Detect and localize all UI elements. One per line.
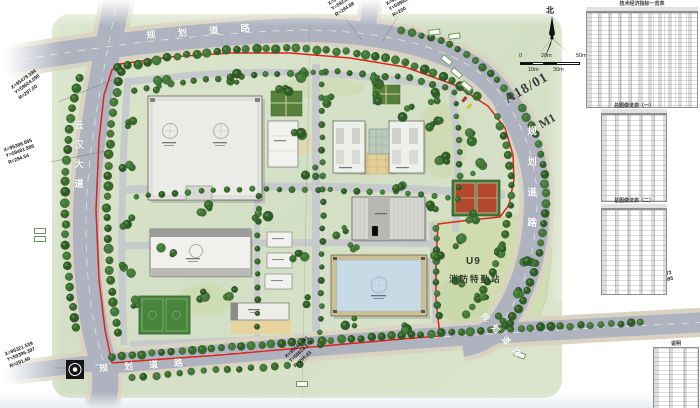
atrium	[369, 129, 389, 154]
road-sign-chip	[34, 228, 46, 234]
schedule-table-1: 总图做法表（一）	[601, 103, 667, 202]
scale-segment	[520, 62, 532, 65]
building-c	[150, 229, 253, 278]
notes-table: 说明	[653, 341, 699, 408]
fire-station-name: 消防特勤站	[449, 273, 502, 285]
building-e	[331, 255, 430, 319]
scale-10m: 10m	[528, 67, 539, 73]
scale-30m: 30m	[553, 67, 564, 73]
table-body	[586, 12, 698, 108]
scale-segment	[556, 62, 580, 65]
tower-east	[389, 121, 426, 175]
building-b	[268, 121, 298, 167]
site-plan-sheet: 云汉大道 规划道路 规划道路 规划道路 规划道路 U9 消防特勤站 A18/01…	[0, 0, 700, 408]
scale-segment	[544, 62, 556, 65]
index-table-main: 技术经济指标一览表	[586, 1, 698, 108]
building-a	[148, 96, 265, 203]
scale-20m: 20m	[541, 53, 552, 59]
schedule-table-2: 总图做法表（二）	[601, 198, 667, 295]
tower-west	[333, 121, 367, 175]
north-label: 北	[546, 5, 554, 16]
road-sign-chip	[296, 381, 308, 387]
building-d	[352, 197, 427, 242]
table-body	[601, 209, 667, 295]
scale-segment	[532, 62, 544, 65]
building-stack	[265, 232, 292, 289]
scale-0: 0	[519, 53, 522, 59]
road-label-right: 规划道路	[523, 126, 537, 248]
table-body	[653, 347, 699, 408]
fire-station-code: U9	[466, 256, 481, 267]
road-label-yunhan-avenue: 云汉大道	[70, 120, 84, 198]
table-body	[601, 114, 667, 202]
road-emblem	[66, 360, 84, 379]
sports-field	[139, 296, 190, 334]
road-sign-chip	[34, 236, 46, 242]
building-f	[231, 303, 291, 334]
